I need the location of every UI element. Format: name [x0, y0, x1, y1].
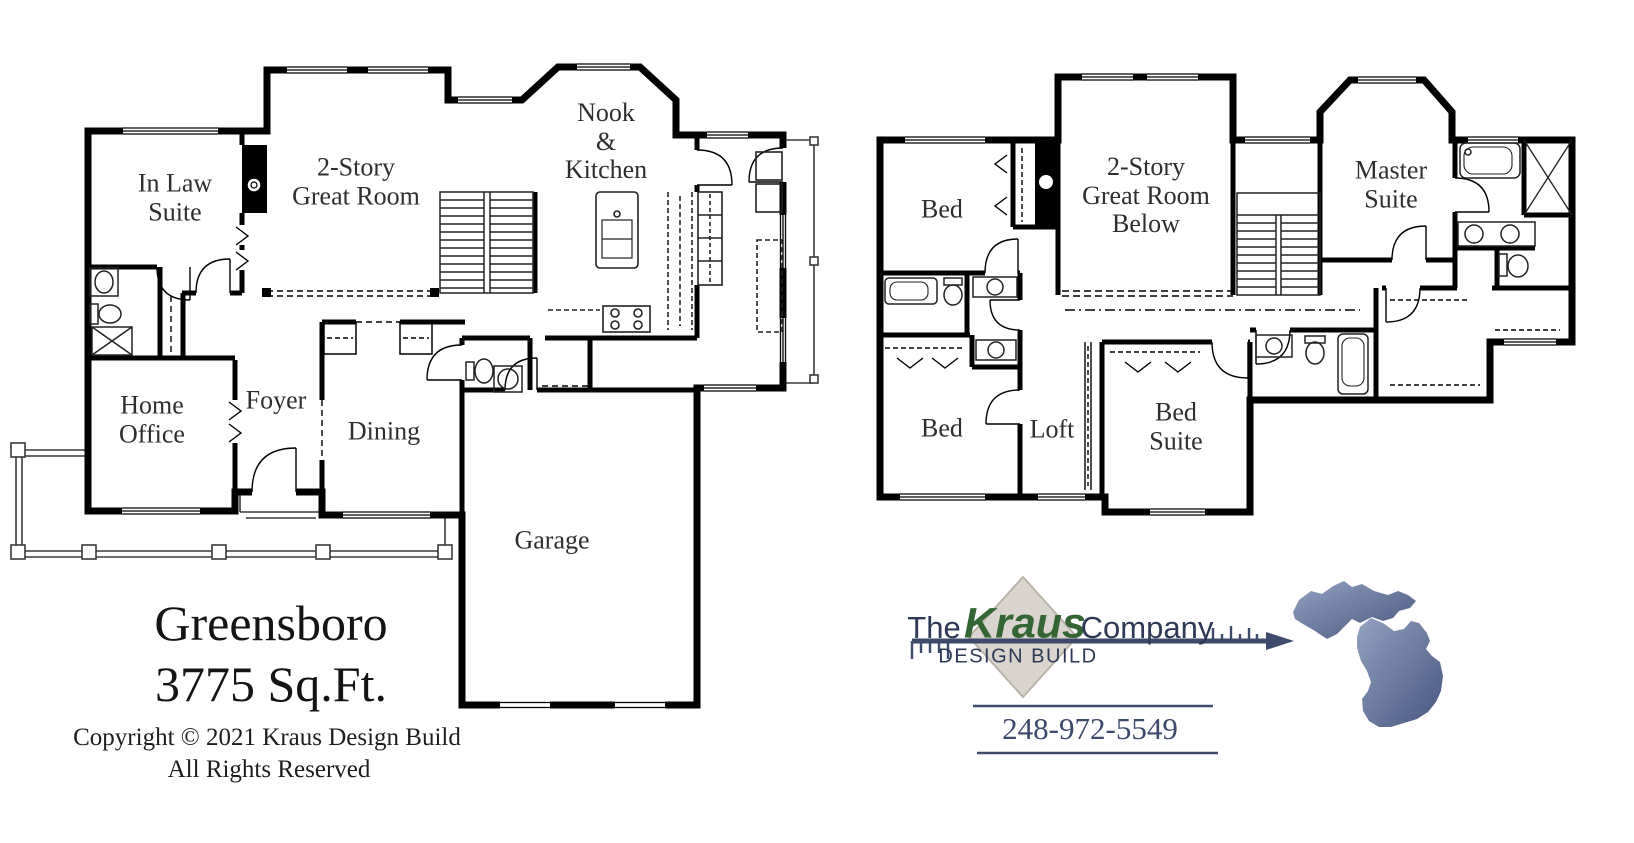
copyright-line-1: Copyright © 2021 Kraus Design Build [73, 724, 461, 752]
loft-railing [1085, 342, 1091, 490]
logo-suffix: Company [1081, 610, 1214, 646]
logo-brand-name: Kraus [964, 600, 1086, 649]
staircase-first-floor [440, 192, 533, 293]
second-floor-plan [880, 72, 1572, 517]
copyright-line-2: All Rights Reserved [168, 756, 371, 784]
michigan-state-icon [1293, 581, 1443, 727]
room-label-in-law-suite: In Law Suite [138, 169, 212, 226]
room-label-great-room: 2-Story Great Room [292, 153, 420, 210]
logo-prefix: The [907, 610, 960, 646]
room-label-garage: Garage [514, 527, 589, 556]
room-label-bed-front: Bed [921, 196, 963, 225]
room-label-great-room-below: 2-Story Great Room Below [1082, 153, 1210, 239]
room-label-bed-suite: Bed Suite [1149, 398, 1202, 455]
bath-fixtures-first-floor [90, 268, 522, 392]
floor-plan-sheet: In Law Suite2-Story Great RoomNook & Kit… [0, 0, 1634, 843]
staircase-second-floor [1237, 193, 1320, 295]
room-label-master-suite: Master Suite [1355, 156, 1427, 213]
logo-phone-number: 248-972-5549 [1002, 711, 1178, 747]
bath-fixtures-second-floor [885, 140, 1572, 394]
room-label-nook-kitchen: Nook & Kitchen [565, 99, 647, 185]
room-label-home-office: Home Office [119, 391, 185, 448]
room-label-bed-rear: Bed [921, 415, 963, 444]
room-label-foyer: Foyer [246, 387, 307, 416]
room-label-dining: Dining [348, 418, 420, 447]
room-label-loft: Loft [1030, 416, 1075, 445]
plan-area: 3775 Sq.Ft. [155, 655, 387, 713]
plan-title: Greensboro [154, 594, 387, 652]
floor-plan-drawing [0, 0, 1634, 843]
logo-tagline: DESIGN BUILD [938, 646, 1097, 669]
